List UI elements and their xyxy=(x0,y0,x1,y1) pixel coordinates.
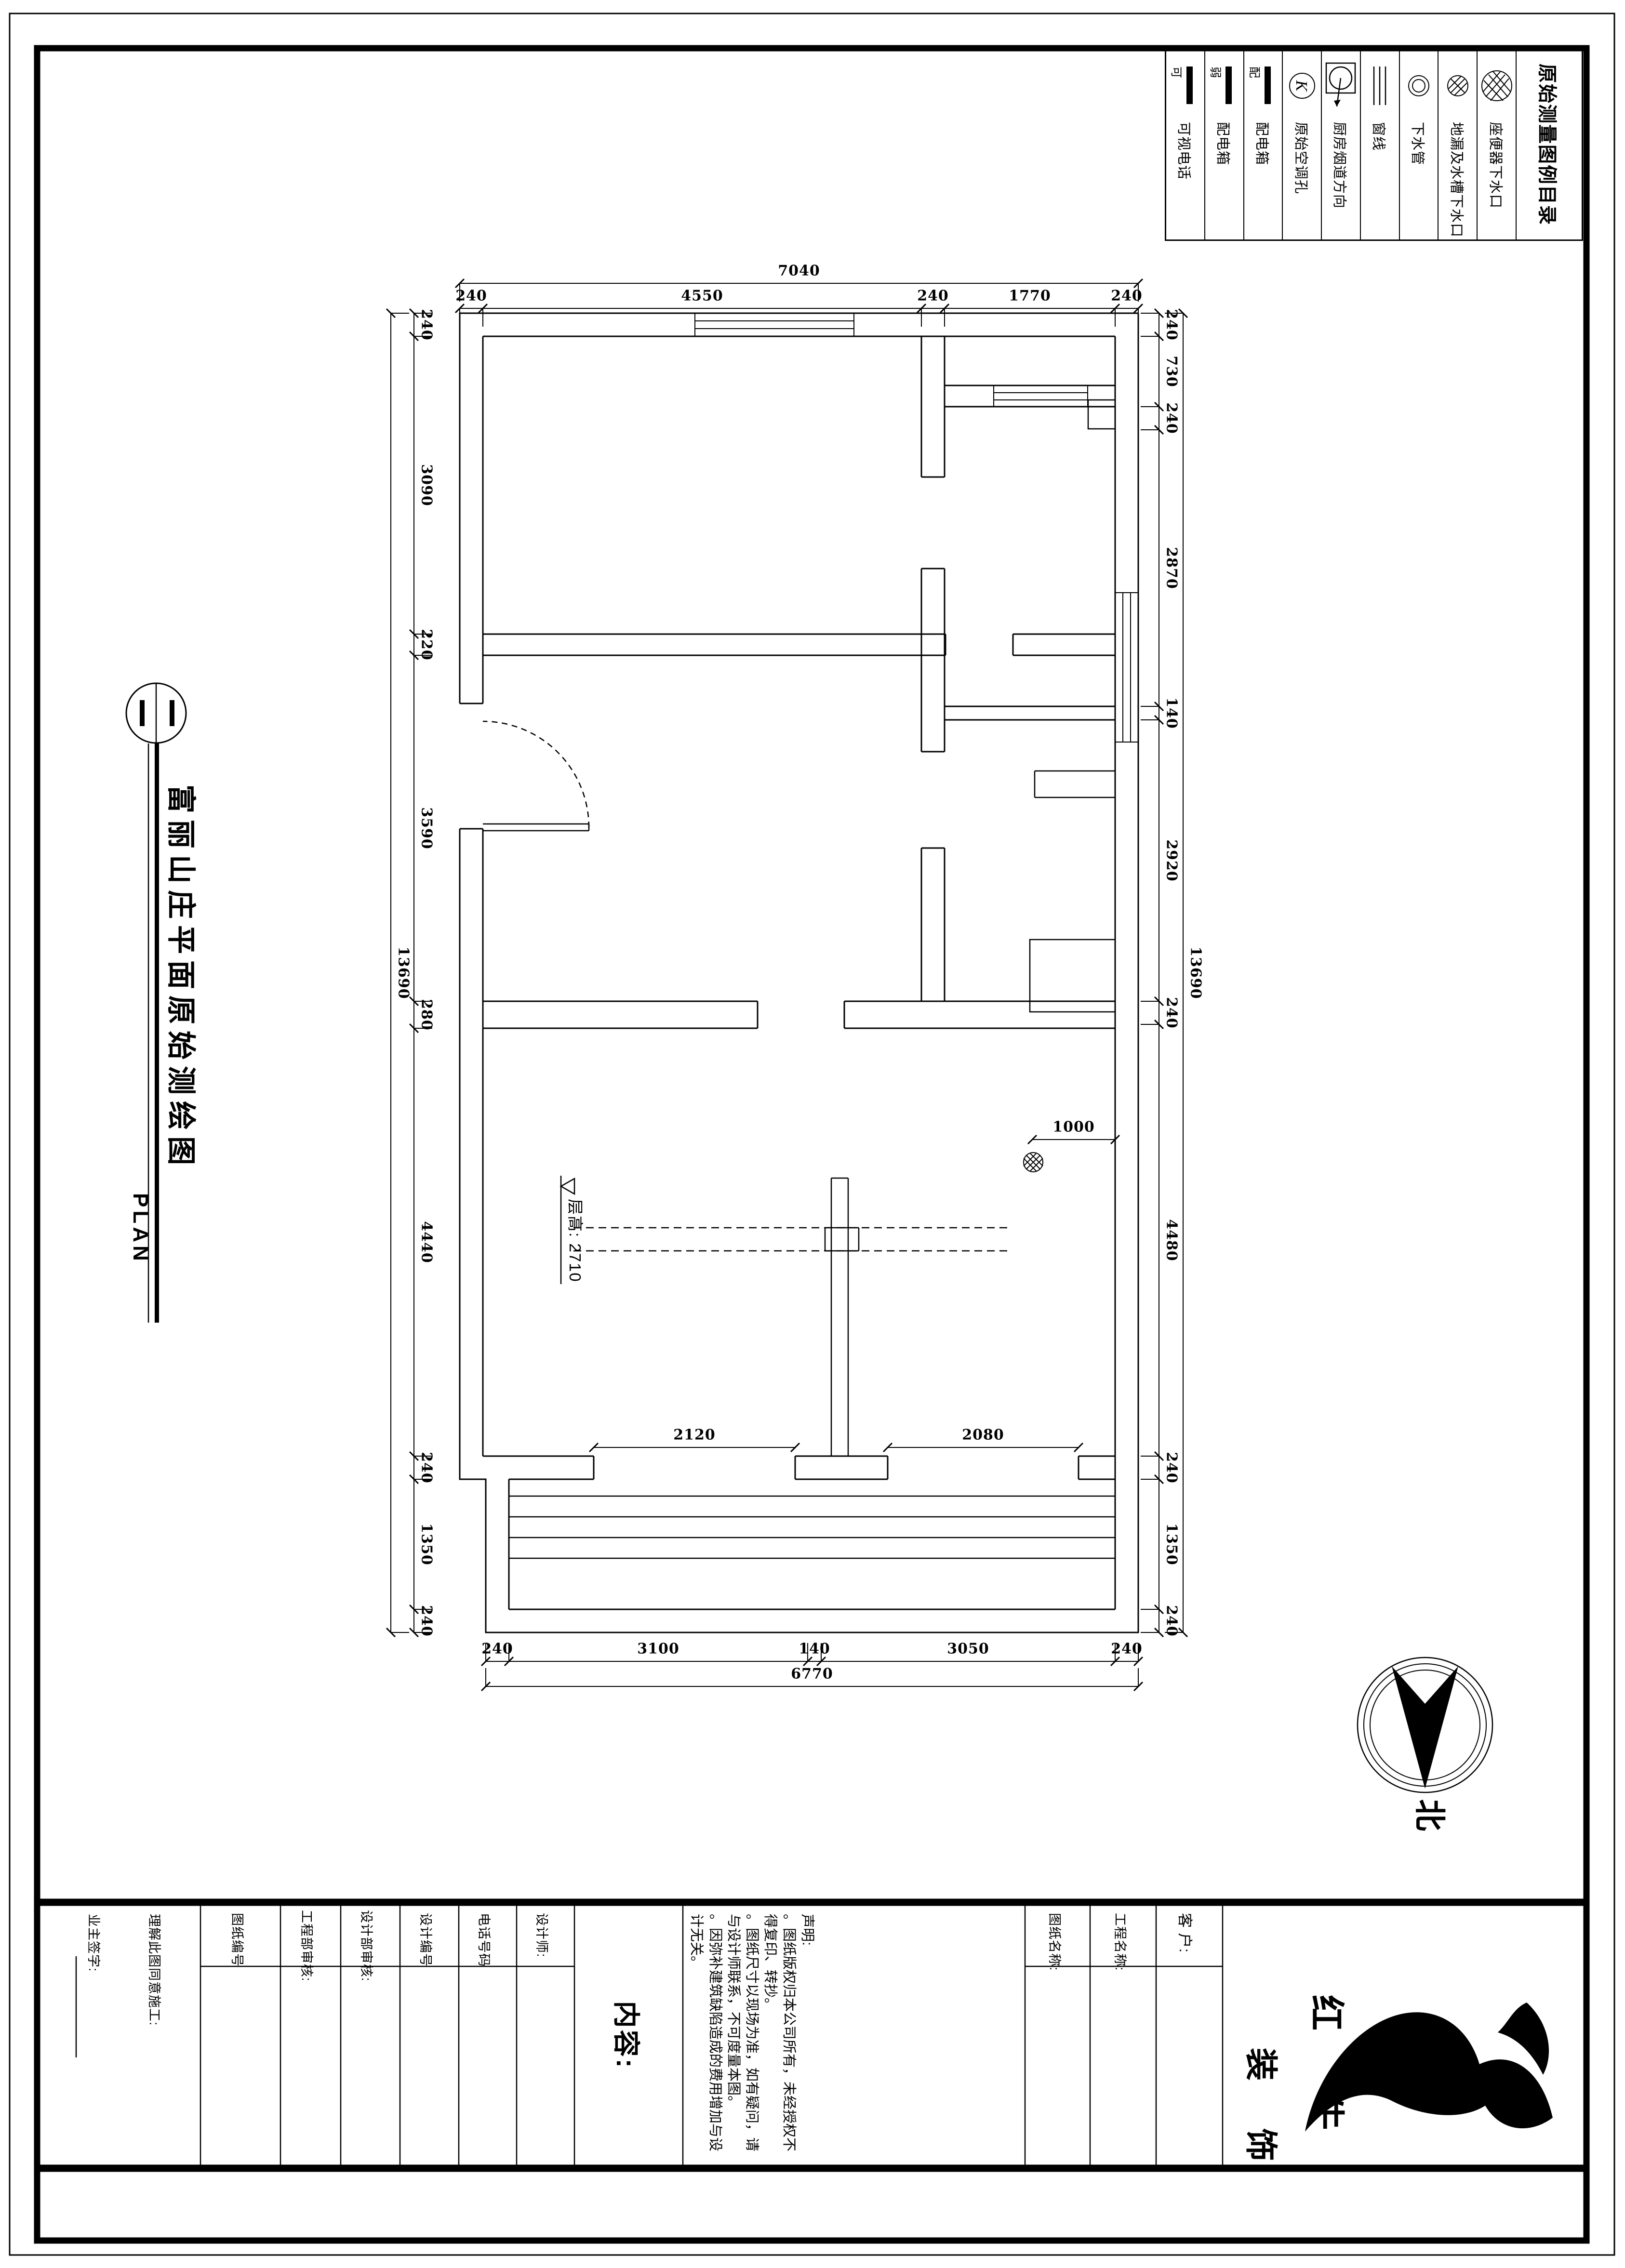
design-no-label: 设计编号 xyxy=(417,1913,436,1967)
dim-label-plan-bottom-segments: 240 xyxy=(418,1452,435,1484)
dim-label-balcony-opening-upper: 2080 xyxy=(962,1427,1004,1444)
drawing-title-en: PLAN xyxy=(128,1193,152,1264)
figure-number-bubble xyxy=(126,683,186,743)
legend-label: 厨房烟道方向 xyxy=(1322,122,1360,239)
legend-row: 下水管 xyxy=(1399,50,1438,239)
legend-label: 窗线 xyxy=(1361,122,1399,239)
legend-row: 地漏及水槽下水口 xyxy=(1438,50,1477,239)
dim-label-plan-right-segments: 3050 xyxy=(947,1641,989,1658)
window-lines-icon xyxy=(1361,50,1399,122)
floor-sink-drain-hatched-circle-icon xyxy=(1439,50,1477,122)
floor-height-label: 层高: 2710 xyxy=(565,1199,588,1283)
legend-row: 配 配电箱 xyxy=(1243,50,1282,239)
legend-row: 窗线 xyxy=(1360,50,1399,239)
dim-label-plan-top-segments: 240 xyxy=(1163,1452,1180,1484)
dim-label-plan-right-segments: 240 xyxy=(481,1641,513,1658)
toilet-drain-crosshatch-circle-icon xyxy=(1478,50,1516,122)
dim-label-plan-bottom-segments: 280 xyxy=(418,999,435,1031)
drain-pipe-double-circle-icon xyxy=(1400,50,1438,122)
dim-label-plan-right-total: 6770 xyxy=(791,1666,833,1683)
legend-label: 可视电话 xyxy=(1166,122,1204,239)
drawing-title-zh: 富丽山庄平面原始测绘图 xyxy=(162,784,204,1171)
drawing-page: 原始测量图例目录 座便器下水口 地漏及水槽下水口 下水管 xyxy=(0,0,1625,2268)
dim-label-plan-bottom-segments: 3090 xyxy=(418,464,435,506)
logo-chars-left: 红 牛 xyxy=(1304,1995,1355,2157)
video-phone-bar-icon: 可 xyxy=(1166,50,1204,122)
weak-current-box-bar-icon: 弱 xyxy=(1205,50,1243,122)
dim-label-plan-bottom-segments: 1350 xyxy=(418,1523,435,1565)
legend-label: 地漏及水槽下水口 xyxy=(1439,122,1477,239)
legend-title: 原始测量图例目录 xyxy=(1516,50,1582,239)
content-label: 内容: xyxy=(609,1905,648,2165)
engineering-dept-audit-label: 工程部审核: xyxy=(298,1910,317,1982)
dim-label-plan-bottom-segments: 4440 xyxy=(418,1221,435,1263)
dim-label-plan-left-segments: 1770 xyxy=(1009,288,1051,305)
dim-label-plan-bottom-segments: 240 xyxy=(418,309,435,341)
owner-sign-label: 业主签字: xyxy=(85,1914,104,1972)
dim-label-plan-top-segments: 2920 xyxy=(1163,839,1180,882)
dim-label-plan-bottom-total: 13690 xyxy=(395,946,412,999)
dim-label-plan-bottom-segments: 220 xyxy=(418,629,435,661)
legend-row: 座便器下水口 xyxy=(1477,50,1516,239)
legend-label: 下水管 xyxy=(1400,122,1438,239)
dim-label-plan-bottom-segments: 240 xyxy=(418,1605,435,1637)
designer-label: 设计师: xyxy=(533,1913,552,1958)
declaration-item: 。因弥补建筑缺陷造成的费用增加与设计无关。 xyxy=(687,1914,724,2157)
phone-label: 电话号码 xyxy=(476,1913,494,1967)
legend-row: 可 可视电话 xyxy=(1166,50,1204,239)
inner-border xyxy=(37,48,1586,2241)
distribution-box-bar-icon: 配 xyxy=(1244,50,1282,122)
understand-label: 理解此图同意施工: xyxy=(146,1914,165,2026)
dim-label-plan-right-segments: 240 xyxy=(1111,1641,1143,1658)
declaration-item: 。图纸尺寸以现场为准，如有疑问，请与设计师联系，不可度量本图。 xyxy=(724,1914,761,2157)
dim-label-plan-top-segments: 730 xyxy=(1163,356,1180,387)
dim-label-plan-left-segments: 4550 xyxy=(681,288,723,305)
dim-label-plan-bottom-segments: 3590 xyxy=(418,807,435,849)
north-arrow-icon xyxy=(1358,1658,1492,1792)
dim-label-plan-right-segments: 3100 xyxy=(637,1641,679,1658)
declaration-label: 声明: xyxy=(798,1914,816,2157)
dim-label-plan-left-segments: 240 xyxy=(917,288,949,305)
dim-label-plan-top-total: 13690 xyxy=(1187,946,1204,999)
legend-row: K 原始空调孔 xyxy=(1282,50,1321,239)
design-dept-audit-label: 设计部审核: xyxy=(358,1910,377,1982)
dim-label-plan-top-segments: 240 xyxy=(1163,402,1180,434)
legend-label: 配电箱 xyxy=(1244,122,1282,239)
project-name-label: 工程名称: xyxy=(1112,1913,1131,1971)
dimension-lines xyxy=(386,279,1187,1691)
dim-label-plan-top-segments: 240 xyxy=(1163,309,1180,341)
customer-label: 客 户: xyxy=(1175,1913,1197,1953)
sheet-no-label: 图纸编号 xyxy=(229,1913,248,1967)
legend-label: 座便器下水口 xyxy=(1478,122,1516,239)
ac-hole-circle-icon: K xyxy=(1283,50,1321,122)
dim-label-plan-top-segments: 240 xyxy=(1163,997,1180,1029)
floor-plan-walls xyxy=(460,313,1138,1632)
dim-label-plan-left-total: 7040 xyxy=(778,263,820,279)
logo-chars-right: 装 饰 xyxy=(1240,2048,1288,2180)
dim-label-plan-top-segments: 2870 xyxy=(1163,547,1180,589)
dim-label-drain-offset: 1000 xyxy=(1052,1119,1095,1136)
dim-label-plan-top-segments: 240 xyxy=(1163,1605,1180,1637)
dim-label-plan-top-segments: 4480 xyxy=(1163,1219,1180,1261)
legend-label: 原始空调孔 xyxy=(1283,122,1321,239)
dim-label-balcony-opening-lower: 2120 xyxy=(673,1427,716,1444)
dim-label-plan-top-segments: 1350 xyxy=(1163,1523,1180,1565)
legend-table: 原始测量图例目录 座便器下水口 地漏及水槽下水口 下水管 xyxy=(1165,48,1583,241)
drawing-name-label: 图纸名称: xyxy=(1046,1913,1065,1971)
dim-label-plan-left-segments: 240 xyxy=(455,288,487,305)
declaration-item: 。图纸版权归本公司所有，未经授权不得复印、转抄。 xyxy=(761,1914,798,2157)
legend-label: 配电箱 xyxy=(1205,122,1243,239)
svg-text:K: K xyxy=(1292,80,1310,93)
landscape-sheet: 原始测量图例目录 座便器下水口 地漏及水槽下水口 下水管 xyxy=(0,0,1625,2268)
dim-label-plan-top-segments: 140 xyxy=(1163,697,1180,729)
dim-label-plan-left-segments: 240 xyxy=(1111,288,1143,305)
dim-label-plan-right-segments: 140 xyxy=(799,1641,830,1658)
legend-row: 厨房烟道方向 xyxy=(1321,50,1360,239)
declaration-block: 声明: 。图纸版权归本公司所有，未经授权不得复印、转抄。 。图纸尺寸以现场为准，… xyxy=(687,1914,816,2157)
floor-drain-icon xyxy=(1024,1153,1043,1172)
north-label: 北 xyxy=(1409,1799,1455,1831)
legend-row: 弱 配电箱 xyxy=(1204,50,1243,239)
kitchen-flue-direction-icon xyxy=(1322,50,1360,122)
